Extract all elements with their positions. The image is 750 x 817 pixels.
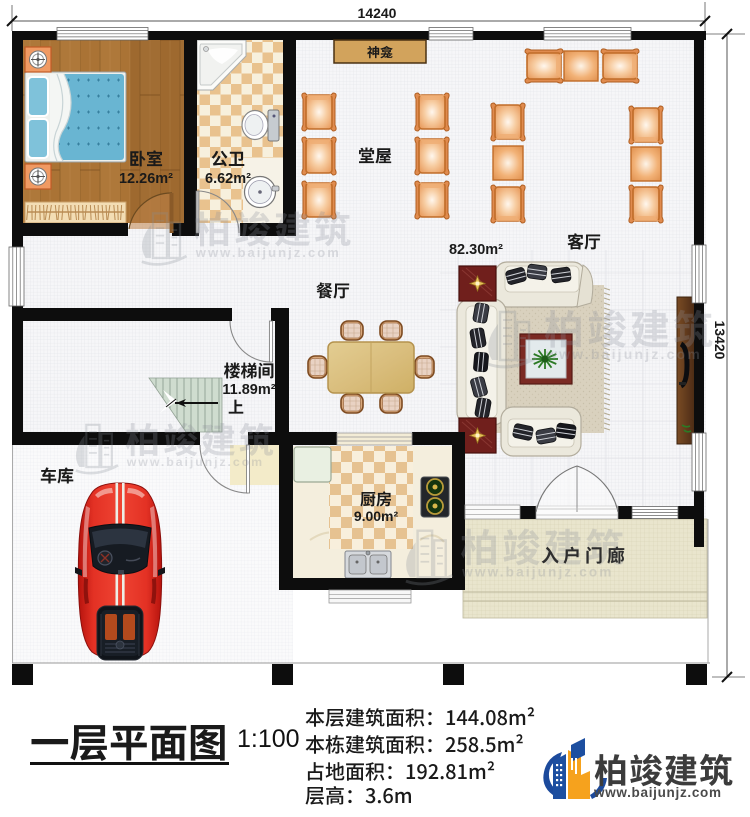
svg-text:82.30m²: 82.30m² (449, 242, 503, 258)
svg-text:13420: 13420 (712, 321, 728, 360)
svg-text:6.62m²: 6.62m² (205, 171, 251, 187)
svg-text:www.baijunjz.com: www.baijunjz.com (126, 455, 264, 469)
svg-text:www.baijunjz.com: www.baijunjz.com (195, 245, 341, 260)
svg-text:12.26m²: 12.26m² (119, 171, 173, 187)
svg-text:9.00m²: 9.00m² (354, 508, 399, 524)
svg-text:www.baijunjz.com: www.baijunjz.com (461, 564, 613, 579)
svg-text:11.89m²: 11.89m² (222, 382, 275, 398)
svg-text:www.baijunjz.com: www.baijunjz.com (545, 346, 702, 362)
svg-text:www.baijunjz.com: www.baijunjz.com (593, 785, 722, 800)
svg-text:1:100: 1:100 (237, 725, 300, 753)
svg-text:14240: 14240 (358, 5, 397, 21)
